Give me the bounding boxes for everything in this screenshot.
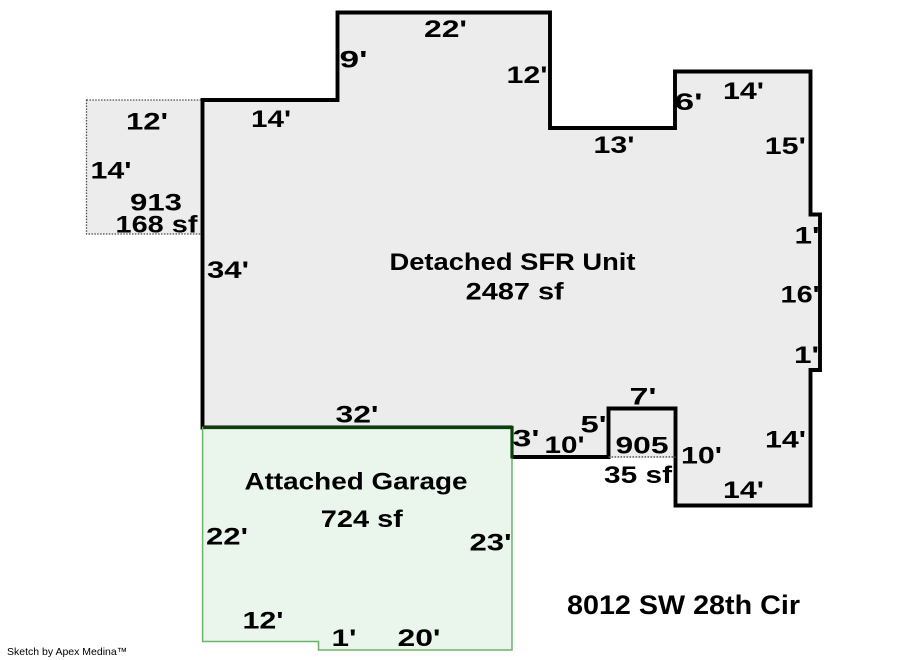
svg-text:1': 1' (794, 342, 819, 369)
svg-text:2487 sf: 2487 sf (466, 279, 565, 306)
svg-text:6': 6' (675, 89, 703, 116)
svg-text:35 sf: 35 sf (604, 462, 673, 489)
svg-text:1': 1' (332, 625, 357, 652)
svg-text:1': 1' (795, 223, 820, 250)
svg-text:12': 12' (507, 62, 548, 89)
svg-text:22': 22' (424, 16, 467, 43)
svg-text:905: 905 (616, 433, 669, 460)
svg-text:13': 13' (594, 132, 635, 159)
svg-text:22': 22' (206, 524, 248, 551)
svg-text:12': 12' (126, 109, 168, 136)
svg-text:Attached Garage: Attached Garage (245, 469, 468, 496)
svg-text:724 sf: 724 sf (321, 506, 404, 533)
svg-text:16': 16' (781, 282, 820, 309)
svg-text:23': 23' (470, 530, 512, 557)
svg-text:14': 14' (723, 78, 764, 105)
svg-text:Sketch by Apex Medina™: Sketch by Apex Medina™ (7, 646, 127, 658)
svg-text:7': 7' (630, 384, 657, 411)
svg-text:34': 34' (207, 257, 249, 284)
svg-text:Detached SFR Unit: Detached SFR Unit (390, 249, 636, 276)
svg-text:14': 14' (723, 477, 764, 504)
svg-text:3': 3' (513, 426, 540, 453)
svg-text:32': 32' (336, 402, 379, 429)
svg-text:15': 15' (765, 133, 806, 160)
svg-text:8012 SW 28th Cir: 8012 SW 28th Cir (567, 590, 801, 620)
svg-text:14': 14' (251, 106, 291, 133)
svg-text:14': 14' (91, 158, 132, 185)
svg-text:10': 10' (545, 432, 585, 459)
svg-text:20': 20' (398, 625, 441, 652)
svg-text:10': 10' (681, 443, 722, 470)
svg-text:9': 9' (340, 47, 368, 74)
svg-text:168 sf: 168 sf (116, 212, 199, 239)
svg-text:14': 14' (765, 427, 806, 454)
svg-text:12': 12' (243, 608, 284, 635)
